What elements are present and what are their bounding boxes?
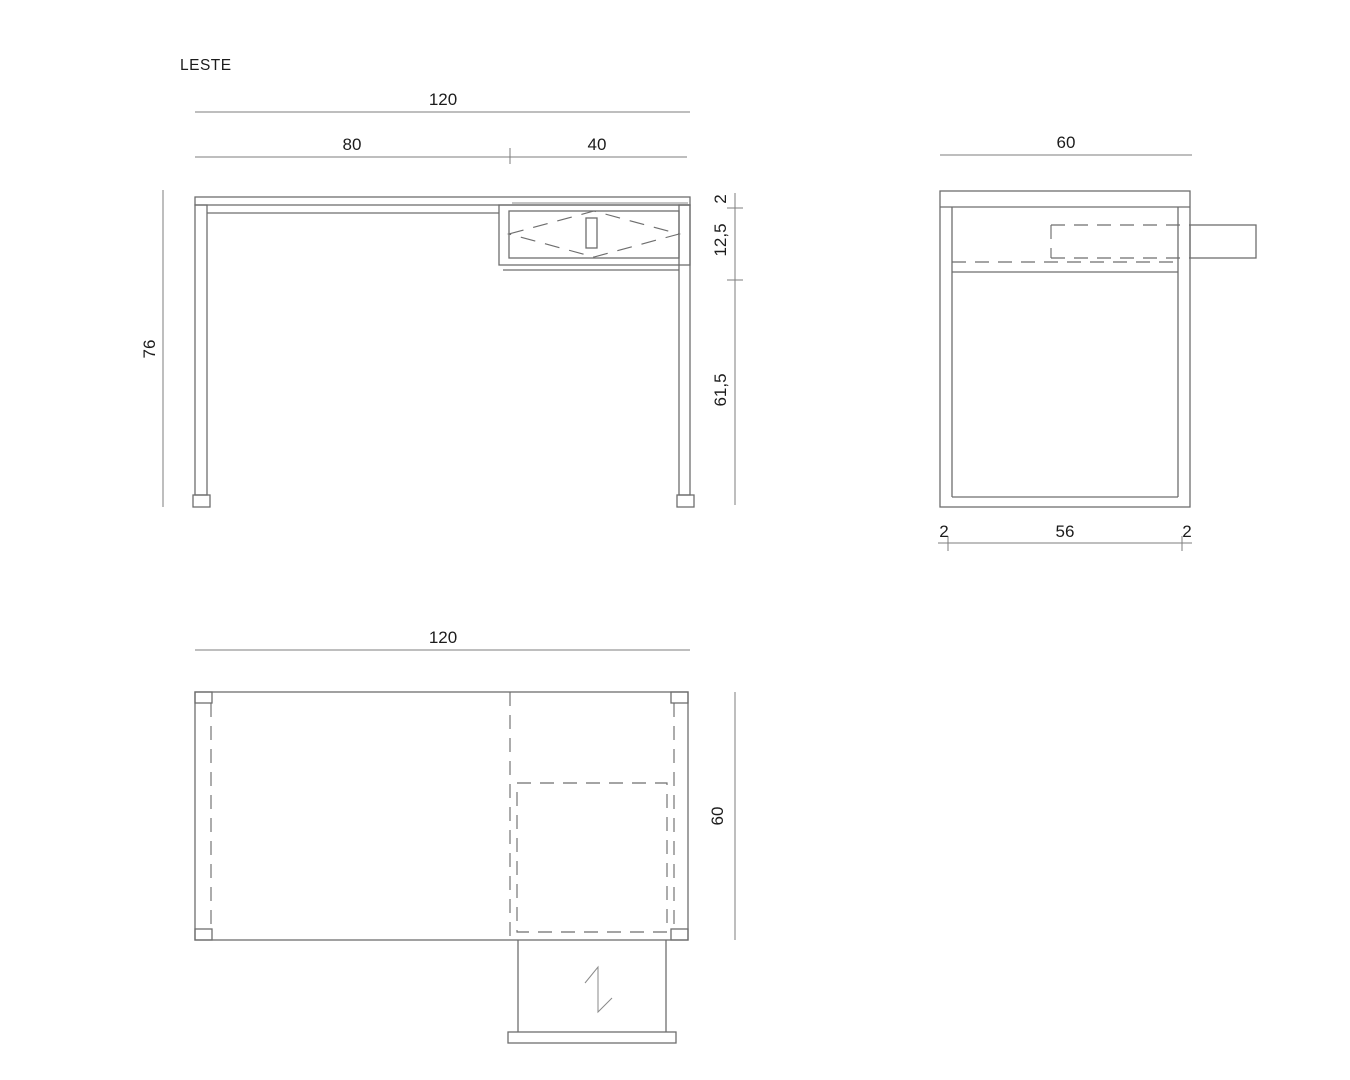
plan-tabletop xyxy=(195,692,688,940)
plan-hidden-drawer-box xyxy=(517,783,667,932)
side-dim-interior-label: 56 xyxy=(1056,522,1075,541)
front-dim-height: 76 xyxy=(140,190,163,507)
plan-dim-width: 120 xyxy=(195,628,690,650)
plan-leg-bottom-right xyxy=(671,929,688,940)
plan-drawer-front-panel xyxy=(508,1032,676,1043)
front-tabletop xyxy=(195,197,690,205)
front-dim-sections: 80 40 xyxy=(195,135,687,164)
front-drawer-unit xyxy=(499,205,690,270)
front-view: LESTE 120 80 40 76 xyxy=(140,57,743,507)
side-dim-depth-label: 60 xyxy=(1057,133,1076,152)
side-dim-depth: 60 xyxy=(940,133,1192,155)
side-drawer-front-protrusion xyxy=(1190,225,1256,258)
front-right-leg xyxy=(679,205,690,495)
front-dim-under-drawer-label: 61,5 xyxy=(711,373,730,406)
plan-outline xyxy=(195,692,688,940)
plan-dim-depth: 60 xyxy=(708,692,735,940)
front-dim-total-width: 120 xyxy=(195,90,690,112)
drawer-pullout-arrow-icon xyxy=(585,967,612,1012)
drawing-canvas: LESTE 120 80 40 76 xyxy=(0,0,1350,1080)
front-dim-top-thickness-label: 2 xyxy=(711,194,730,203)
side-dim-panel-left-label: 2 xyxy=(939,522,948,541)
front-left-foot xyxy=(193,495,210,507)
plan-leg-top-right xyxy=(671,692,688,703)
plan-leg-bottom-left xyxy=(195,929,212,940)
front-dim-right-section-label: 40 xyxy=(588,135,607,154)
side-view: 60 2 56 2 xyxy=(938,133,1256,551)
plan-drawer xyxy=(508,783,676,1043)
side-drawer xyxy=(1051,225,1256,258)
front-dim-vertical-chain: 2 12,5 61,5 xyxy=(711,193,743,505)
side-dim-bottom-chain: 2 56 2 xyxy=(938,522,1192,551)
front-left-leg xyxy=(195,205,207,495)
front-dim-height-label: 76 xyxy=(140,340,159,359)
side-outline xyxy=(940,191,1190,507)
front-drawer-handle xyxy=(586,218,597,248)
front-dim-drawer-band-label: 12,5 xyxy=(711,223,730,256)
front-right-foot xyxy=(677,495,694,507)
front-dim-total-width-label: 120 xyxy=(429,90,457,109)
technical-drawing-page: LESTE 120 80 40 76 xyxy=(0,0,1350,1080)
side-frame xyxy=(940,191,1190,507)
front-desk-outline xyxy=(193,197,694,507)
side-dim-panel-right-label: 2 xyxy=(1182,522,1191,541)
plan-leg-top-left xyxy=(195,692,212,703)
plan-dim-width-label: 120 xyxy=(429,628,457,647)
drawing-title: LESTE xyxy=(180,57,232,74)
front-dim-left-section-label: 80 xyxy=(343,135,362,154)
front-drawer-housing xyxy=(499,205,690,265)
plan-view: 120 60 xyxy=(195,628,735,1043)
plan-dim-depth-label: 60 xyxy=(708,807,727,826)
